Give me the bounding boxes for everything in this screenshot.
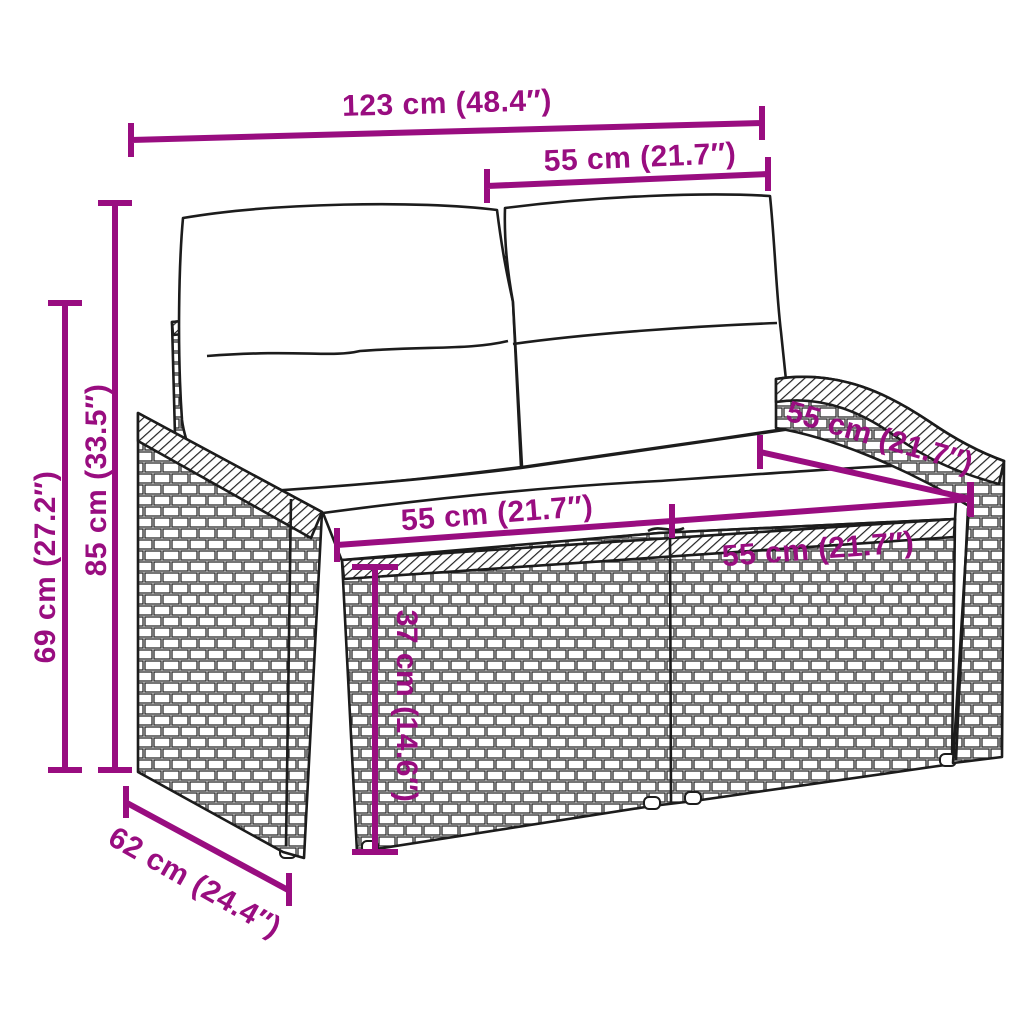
- dim-label-arm-height: 69 cm (27.2″): [29, 471, 62, 664]
- foot: [685, 792, 701, 804]
- dim-label-overall-width: 123 cm (48.4″): [342, 84, 553, 123]
- foot: [644, 797, 660, 809]
- dim-label-seat-height: 37 cm (14.6″): [390, 610, 423, 803]
- back-cushion-left: [179, 204, 521, 496]
- base-module-seam: [670, 529, 671, 803]
- dim-label-overall-height: 85 cm (33.5″): [80, 384, 113, 577]
- dim-label-backrest-width: 55 cm (21.7″): [543, 137, 737, 178]
- sofa-diagram-canvas: 123 cm (48.4″) 55 cm (21.7″) 85 cm (33.5…: [0, 0, 1024, 1024]
- product-dimension-diagram: 123 cm (48.4″) 55 cm (21.7″) 85 cm (33.5…: [0, 0, 1024, 1024]
